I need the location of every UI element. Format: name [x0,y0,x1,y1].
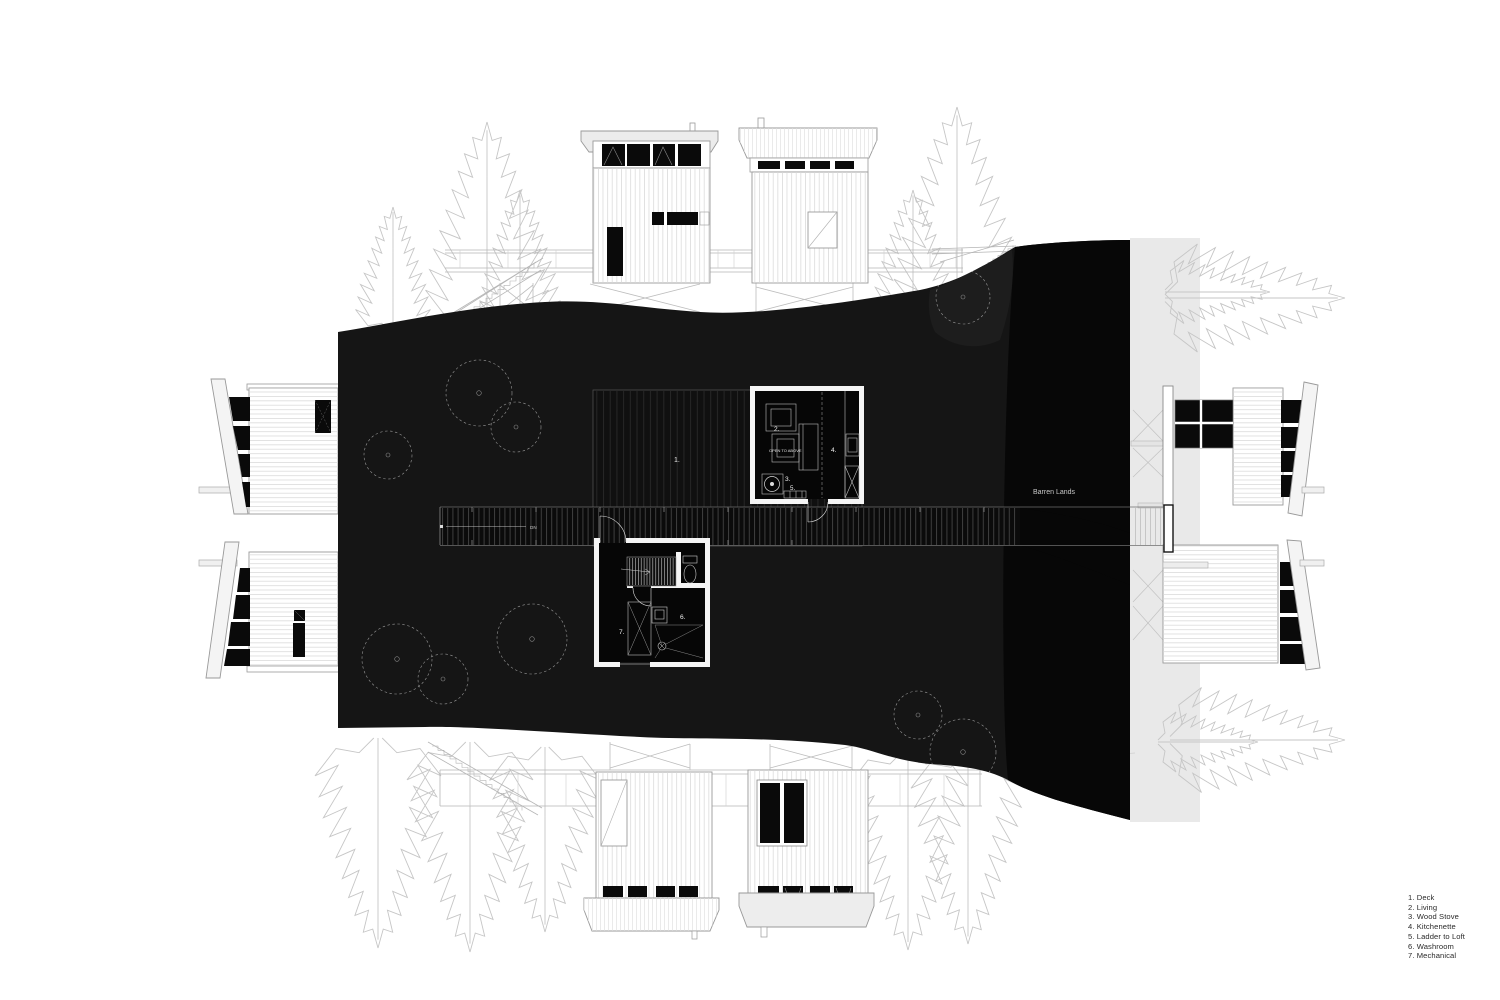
living-number-label: 2. [774,426,780,433]
side-elevation-lower [199,542,340,678]
legend-item: 6. Washroom [1408,942,1500,952]
outrigger-beam [1302,487,1324,493]
legend-item: 7. Mechanical [1408,951,1500,961]
legend-item: 4. Kitchenette [1408,922,1500,932]
chimney-pipe [758,118,764,128]
bunk-cabin-elevation [739,118,877,283]
ribbon-window [667,212,698,225]
living-room-plan: 2. OPEN TO ABOVE 3. 4. 5. [750,386,864,522]
conifer-tree-icon [356,207,431,332]
west-elevations [199,379,340,678]
legend: 1. Deck 2. Living 3. Wood Stove 4. Kitch… [1408,893,1500,961]
stove-number-label: 3. [785,476,791,483]
living-cabin-elevation [739,770,874,937]
conifer-tree-icon [911,754,1025,944]
conifer-tree-icon [407,742,533,952]
legend-item: 3. Wood Stove [1408,912,1500,922]
mechanical-number-label: 7. [619,629,625,636]
bridge-landing-pad [1164,505,1173,552]
chimney-pipe [692,931,697,939]
architectural-drawing-page: { "title": "Cabin site plan with unfolde… [0,0,1500,1000]
side-elevation-lower-right [1163,540,1324,670]
site-plan: 1. DN [338,240,1173,820]
floor-plan-svg: 1. DN [0,0,1500,1000]
end-wall [1163,386,1173,505]
washroom-number-label: 6. [680,614,686,621]
open-to-above-label: OPEN TO ABOVE [769,448,802,453]
outrigger-beam [1300,560,1324,566]
legend-item: 1. Deck [1408,893,1500,903]
legend-item: 2. Living [1408,903,1500,913]
washroom-cabin-elevation [584,772,719,939]
chimney-pipe [761,927,767,937]
rock-tone-light-patch [929,250,1013,346]
roof-canopy [739,893,874,927]
tall-window [607,227,623,276]
stilts-cross-bracing [610,742,852,770]
site-name-label: Barren Lands [1033,489,1076,496]
ladder-number-label: 5. [790,485,795,492]
door [293,623,305,657]
deck-number-label: 1. [674,457,680,464]
walkway-direction-label: DN [530,525,537,530]
conifer-tree-icon [315,738,441,948]
small-window [652,212,664,225]
kitchenette-number-label: 4. [831,447,837,454]
tall-window [760,783,780,843]
tower-cabin-elevation [581,123,718,283]
side-elevation-upper [199,379,340,514]
legend-item: 5. Ladder to Loft [1408,932,1500,942]
tall-window [784,783,804,843]
